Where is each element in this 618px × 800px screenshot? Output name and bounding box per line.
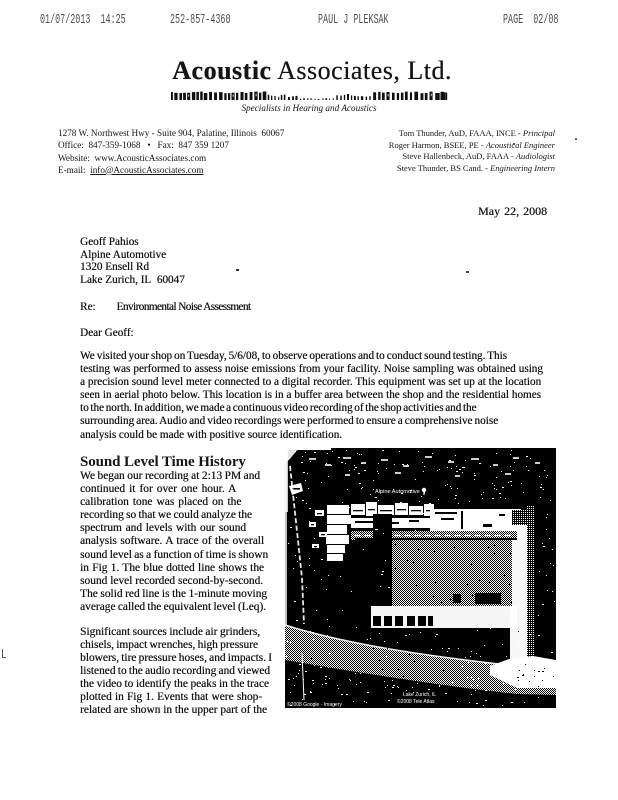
- svg-text:Lake Zurich, IL: Lake Zurich, IL: [403, 692, 436, 698]
- svg-text:©2008 Google - Imagery: ©2008 Google - Imagery: [287, 701, 342, 708]
- svg-text:Alpine Automotive: Alpine Automotive: [375, 489, 420, 495]
- svg-text:©2008 Tele Atlas: ©2008 Tele Atlas: [397, 698, 435, 705]
